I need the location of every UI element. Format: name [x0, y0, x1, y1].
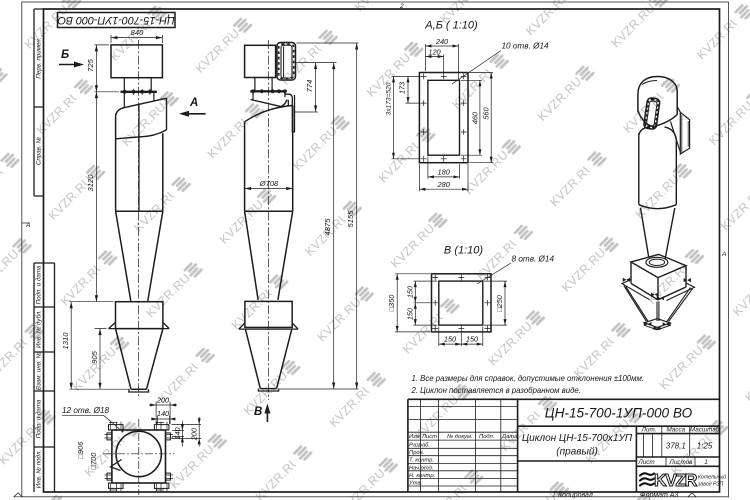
svg-text:8 отв. Ø14: 8 отв. Ø14	[512, 255, 555, 264]
svg-text:280: 280	[437, 180, 451, 189]
svg-text:200: 200	[190, 427, 199, 441]
svg-text:KVZR: KVZR	[654, 470, 698, 490]
svg-text:Перв. примен.: Перв. примен.	[35, 37, 42, 78]
svg-text:140: 140	[157, 409, 170, 418]
svg-text:Справ. №: Справ. №	[35, 137, 42, 165]
svg-text:905: 905	[90, 350, 99, 363]
svg-text:Лит.: Лит.	[641, 427, 657, 434]
svg-text:774: 774	[305, 80, 314, 93]
svg-text:1: 1	[552, 492, 556, 499]
svg-text:Подп.: Подп.	[479, 434, 494, 440]
svg-text:Инв. № дубл.: Инв. № дубл.	[35, 310, 42, 348]
svg-text:200: 200	[156, 395, 170, 404]
svg-text:Циклон ЦН-15-700х1УП: Циклон ЦН-15-700х1УП	[522, 433, 633, 444]
svg-text:Масштаб: Масштаб	[690, 426, 720, 434]
svg-text:1. Все размеры для справок, до: 1. Все размеры для справок, допустимые о…	[412, 374, 645, 383]
svg-text:ЦН-15-700-1УП-000 ВО: ЦН-15-700-1УП-000 ВО	[57, 14, 175, 26]
svg-text:Утв.: Утв.	[408, 481, 422, 487]
svg-text:Инв. № подл.: Инв. № подл.	[35, 450, 42, 488]
svg-text:150: 150	[444, 335, 457, 344]
svg-text:12 отв. Ø18: 12 отв. Ø18	[62, 406, 110, 415]
svg-text:4875: 4875	[323, 218, 332, 236]
svg-text:Масса: Масса	[666, 427, 685, 434]
svg-text:560: 560	[482, 106, 491, 119]
svg-text:□350: □350	[387, 294, 396, 312]
svg-text:140: 140	[173, 426, 182, 439]
svg-text:А: А	[189, 97, 198, 109]
svg-text:Дата: Дата	[501, 434, 518, 440]
svg-text:120: 120	[428, 47, 441, 56]
svg-text:Подп. и дата: Подп. и дата	[35, 265, 42, 304]
svg-text:Копировал: Копировал	[558, 492, 593, 499]
svg-text:150: 150	[466, 335, 479, 344]
svg-text:3120: 3120	[86, 174, 95, 192]
svg-text:460: 460	[470, 111, 479, 124]
svg-text:А: А	[721, 251, 726, 258]
svg-text:Подп. и дата: Подп. и дата	[35, 399, 42, 438]
svg-text:150: 150	[405, 285, 414, 298]
svg-text:Пров.: Пров.	[409, 450, 424, 456]
svg-text:завод РЗП: завод РЗП	[697, 482, 724, 488]
svg-text:2. Циклон поставляется в разоб: 2. Циклон поставляется в разобранном вид…	[411, 386, 581, 395]
svg-text:Лист: Лист	[421, 434, 437, 440]
svg-text:Нач.отд.: Нач.отд.	[409, 465, 433, 471]
svg-text:Н. контр.: Н. контр.	[409, 473, 435, 479]
svg-text:2: 2	[399, 3, 404, 10]
svg-text:(правый): (правый)	[556, 447, 597, 458]
svg-text:378,1: 378,1	[666, 442, 686, 451]
svg-text:Ø708: Ø708	[259, 179, 279, 188]
svg-text:10 отв. Ø14: 10 отв. Ø14	[502, 42, 550, 51]
svg-text:ЦН-15-700-1УП-000 ВО: ЦН-15-700-1УП-000 ВО	[545, 406, 693, 421]
svg-text:150: 150	[405, 307, 414, 320]
svg-text:□250: □250	[495, 294, 504, 312]
svg-text:Лист: Лист	[637, 459, 654, 466]
svg-text:Б: Б	[61, 49, 69, 61]
svg-text:Изм.: Изм.	[409, 434, 421, 440]
svg-text:3х173=520: 3х173=520	[385, 82, 392, 115]
svg-text:1:25: 1:25	[697, 442, 713, 451]
svg-text:5155: 5155	[346, 210, 355, 228]
svg-text:В (1:10): В (1:10)	[444, 245, 483, 257]
svg-text:173: 173	[397, 81, 406, 94]
svg-text:□906: □906	[76, 441, 85, 459]
svg-text:240: 240	[435, 37, 449, 46]
svg-text:840: 840	[131, 28, 144, 37]
svg-text:1: 1	[704, 459, 708, 466]
svg-text:Т. контр.: Т. контр.	[409, 458, 434, 464]
svg-text:А,Б ( 1:10): А,Б ( 1:10)	[424, 20, 478, 32]
svg-text:180: 180	[438, 168, 451, 177]
svg-text:В: В	[254, 406, 262, 418]
svg-text:Разраб.: Разраб.	[409, 442, 430, 448]
svg-text:Взам. инв. №: Взам. инв. №	[35, 352, 42, 391]
svg-text:№ докум.: № докум.	[447, 434, 473, 440]
svg-text:□700: □700	[89, 452, 98, 470]
svg-text:Формат А3: Формат А3	[640, 492, 678, 499]
svg-text:Котельный: Котельный	[698, 474, 726, 481]
svg-text:1310: 1310	[61, 332, 70, 350]
svg-text:Листов: Листов	[669, 459, 694, 466]
svg-text:725: 725	[86, 58, 95, 71]
